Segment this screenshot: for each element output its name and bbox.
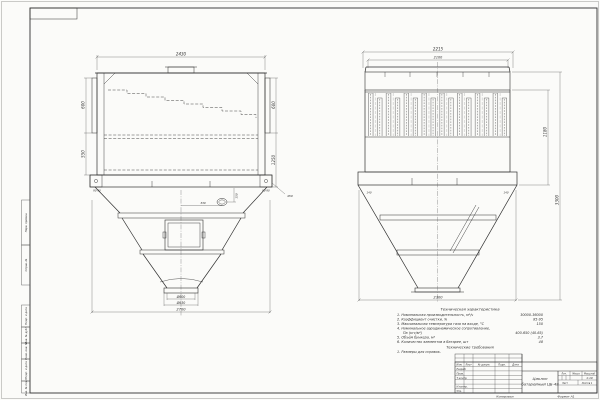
dim-right-lower: 1250 [271,154,276,165]
tech-item-4-label: 4. Номинальное аэродинамическое сопротив… [397,327,490,331]
tb-doc-name-1: Циклон [533,376,548,381]
tech-item-1-label: 1. Номинальная производительность, м³/ч [397,313,473,317]
stamp-perv-primen: Перв. примен. [24,213,28,233]
engineering-drawing: Перв. примен. Справ. № Подп. и дата Инв.… [0,0,600,400]
stamp-vzam-inv: Взам. инв. № [24,342,28,360]
dim-hopper-left: 140 [367,191,372,195]
tb-row-tcontrol: Т.контр. [457,376,468,380]
tech-item-3-value: 150 [537,322,543,326]
tb-row-ncontrol: Н.контр. [457,385,468,389]
footer-copied: Копировал [496,395,513,399]
tech-item-4b-label: Па (кгс/м²) [403,331,422,335]
dim-height-inner: 1180 [543,126,548,137]
dim-outlet-flange: Ø630 [176,300,186,305]
tech-item-6-label: 6. Количество элементов в батарее, шт [397,340,469,344]
tb-row-developed: Разраб. [457,367,467,371]
tech-item-5-label: 5. Объём бункера, м³ [397,336,436,340]
tech-item-1-value: 30000-36000 [520,313,543,317]
drawing-sheet: Перв. примен. Справ. № Подп. и дата Инв.… [0,0,600,400]
dim-fitting-offset: 330 [200,201,206,205]
dim-outlet-inner: Ø600 [176,294,186,299]
tb-sheets-label: Листов 1 [581,382,593,385]
dim-right-upper: 600 [271,101,276,109]
tech-item-2-value: 85-95 [533,318,543,322]
tb-sheet-label: Лист [561,382,568,385]
tb-col-date: Дата [511,362,519,366]
footer-format: Формат А1 [557,395,574,399]
sheet-frame [2,2,599,399]
tb-col-list: Лист [464,362,472,366]
dim-corner-right: 90 90 [262,189,270,193]
dim-corner-left: 90 90 [93,189,101,193]
dim-width-top: 2430 [176,52,187,57]
tech-item-3-label: 3. Максимальная температура газа на вход… [397,322,485,326]
tech-requirements-title: Технические требования [446,346,494,350]
dim-width-top-outer: 2215 [433,47,444,52]
tech-chars-title: Техническая характеристика [440,307,500,312]
tb-row-approved: Утв. [457,389,462,393]
tb-scale-value: 1:10 [586,376,593,380]
dim-left-upper: 600 [81,101,86,109]
dim-left-lower: 550 [81,150,86,158]
stamp-sprav-no: Справ. № [24,258,28,271]
dim-height-overall: 3300 [555,194,560,205]
dim-width-bottom: 2700 [176,308,186,312]
dim-width-bottom-right: 2300 [433,296,443,300]
stamp-inv-podl: Инв. № подл. [24,378,28,396]
tech-item-5-value: 3,7 [538,336,544,340]
stamp-podp-data-2: Подп. и дата [24,361,28,379]
tb-row-checked: Пров. [457,371,464,375]
dim-hopper-right: 140 [504,191,509,195]
tb-col-izm: Изм. [457,362,463,366]
tb-doc-name-2: батарейный ЦБ-48 [521,382,559,387]
tb-mass-label: Масса [572,373,580,376]
dim-fitting-height: 150 [235,193,239,199]
stamp-podp-data-1: Подп. и дата [24,307,28,325]
dim-leader-note: 450 [287,194,293,198]
tb-col-sign: Подп. [498,362,506,366]
tb-lit-label: Лит. [560,373,567,376]
tech-item-2-label: 2. Коэффициент очистки, % [397,318,447,322]
dim-width-top-inner: 2100 [434,56,443,60]
tech-item-4-value: 400-650 (40-65) [515,331,543,335]
tb-col-doc: № докум. [477,363,491,366]
tech-requirement-1: 1. Размеры для справок. [397,350,441,354]
stamp-inv-dubl: Инв. № дубл. [24,326,28,344]
